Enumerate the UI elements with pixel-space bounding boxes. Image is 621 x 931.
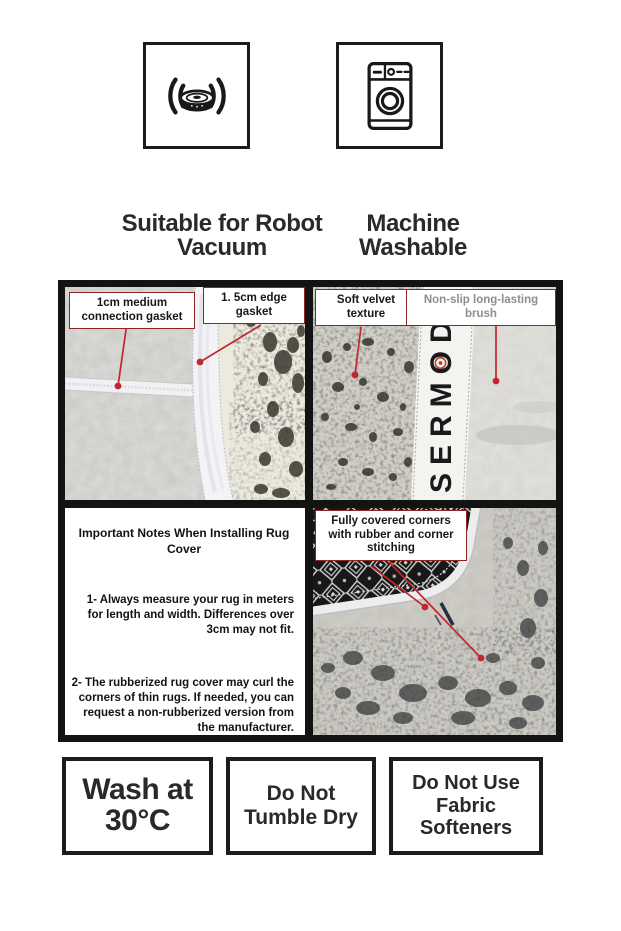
callout-connection-gasket: 1cm medium connection gasket [69, 292, 195, 329]
caption-line: Vacuum [88, 236, 356, 260]
care-no-tumble-dry: Do Not Tumble Dry [226, 757, 376, 855]
caption-line: Suitable for Robot [88, 212, 356, 236]
leader-dot [352, 372, 359, 379]
note-item: 2- The rubberized rug cover may curl the… [71, 676, 294, 735]
top-badges [143, 42, 443, 149]
note-item: 1- Always measure your rug in meters for… [71, 593, 294, 638]
caption-line: Machine [330, 212, 496, 236]
leader-dot [493, 378, 500, 385]
care-line: Tumble Dry [244, 806, 358, 830]
robot-vacuum-badge [143, 42, 250, 149]
callout-covered-corners: Fully covered corners with rubber and co… [315, 510, 467, 561]
leader-dot [197, 359, 204, 366]
caption-machine-washable: Machine Washable [330, 212, 496, 261]
feature-grid: 1cm medium connection gasket 1. 5cm edge… [58, 280, 563, 742]
leader-dot [115, 383, 122, 390]
callout-nonslip-brush: Non-slip long-lasting brush [406, 289, 556, 326]
texture-photo-panel: SERMOD Soft velvet texture Non-slip long… [313, 287, 556, 500]
corner-photo-panel: Fully covered corners with rubber and co… [313, 508, 556, 735]
caption-robot-vacuum: Suitable for Robot Vacuum [88, 212, 356, 261]
care-line: Fabric [436, 795, 496, 817]
robot-vacuum-icon [154, 53, 240, 139]
notes-title: Important Notes When Installing Rug Cove… [73, 526, 295, 557]
care-instructions: Wash at 30°C Do Not Tumble Dry Do Not Us… [62, 757, 543, 855]
care-line: Softeners [420, 817, 512, 839]
care-line: 30°C [105, 806, 170, 837]
brand-text: SERMOD [425, 313, 458, 493]
care-line: Do Not [267, 782, 336, 806]
caption-line: Washable [330, 236, 496, 260]
washing-machine-icon [354, 50, 426, 142]
leader-dot [478, 655, 485, 662]
care-wash-at-30: Wash at 30°C [62, 757, 213, 855]
gasket-photo-panel: 1cm medium connection gasket 1. 5cm edge… [65, 287, 305, 500]
leader-dot [422, 604, 429, 611]
care-line: Wash at [82, 775, 192, 806]
callout-velvet-texture: Soft velvet texture [315, 289, 417, 326]
care-line: Do Not Use [412, 772, 520, 794]
installation-notes-panel: Important Notes When Installing Rug Cove… [65, 508, 305, 735]
callout-edge-gasket: 1. 5cm edge gasket [203, 287, 305, 324]
machine-washable-badge [336, 42, 443, 149]
rug-cover-infographic: Suitable for Robot Vacuum Machine Washab… [0, 0, 621, 931]
care-no-fabric-softeners: Do Not Use Fabric Softeners [389, 757, 543, 855]
